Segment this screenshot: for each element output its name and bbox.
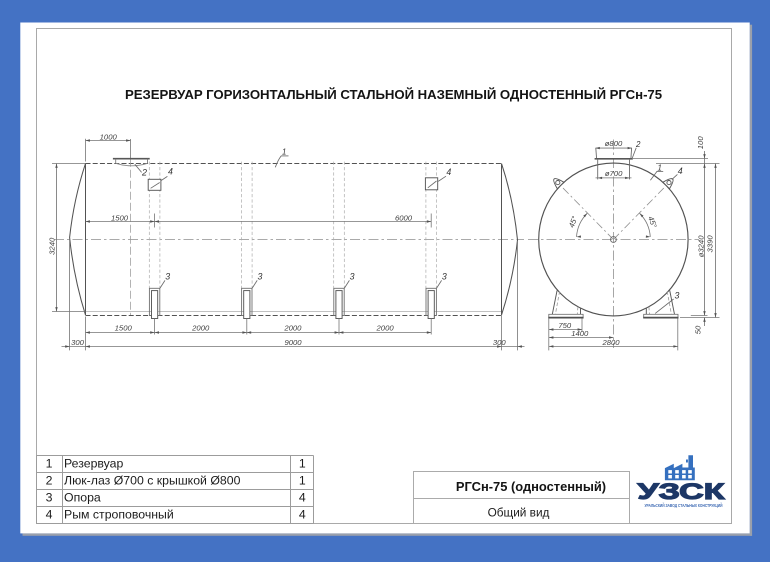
svg-text:4: 4 — [678, 166, 683, 176]
svg-text:4: 4 — [46, 507, 53, 521]
svg-text:Резервуар: Резервуар — [64, 456, 124, 470]
svg-text:Общий вид: Общий вид — [488, 505, 550, 519]
svg-text:2000: 2000 — [191, 324, 210, 333]
svg-text:1: 1 — [282, 148, 286, 157]
svg-text:2000: 2000 — [376, 324, 395, 333]
svg-text:Опора: Опора — [64, 490, 101, 504]
svg-text:2: 2 — [141, 168, 147, 178]
svg-text:1000: 1000 — [100, 132, 118, 141]
svg-text:2: 2 — [635, 140, 641, 149]
svg-text:300: 300 — [71, 338, 85, 347]
svg-text:ø800: ø800 — [605, 139, 623, 148]
svg-text:6000: 6000 — [395, 214, 413, 223]
svg-text:1500: 1500 — [111, 214, 129, 223]
svg-text:750: 750 — [558, 321, 572, 330]
svg-text:4: 4 — [299, 507, 306, 521]
svg-text:РЕЗЕРВУАР ГОРИЗОНТАЛЬНЫЙ СТАЛЬ: РЕЗЕРВУАР ГОРИЗОНТАЛЬНЫЙ СТАЛЬНОЙ НАЗЕМН… — [125, 87, 662, 102]
svg-text:УРАЛЬСКИЙ ЗАВОД СТАЛЬНЫХ КОНСТ: УРАЛЬСКИЙ ЗАВОД СТАЛЬНЫХ КОНСТРУКЦИЙ — [645, 503, 723, 508]
svg-text:1400: 1400 — [571, 329, 589, 338]
svg-text:2800: 2800 — [601, 338, 620, 347]
svg-text:3: 3 — [675, 290, 680, 300]
svg-text:УЗСК: УЗСК — [638, 479, 726, 504]
svg-text:50: 50 — [693, 325, 702, 334]
svg-text:4: 4 — [168, 166, 173, 176]
svg-text:9000: 9000 — [284, 338, 302, 347]
svg-text:1: 1 — [299, 473, 306, 487]
svg-text:1500: 1500 — [115, 324, 133, 333]
svg-text:3: 3 — [46, 490, 53, 504]
svg-text:2000: 2000 — [283, 324, 302, 333]
svg-text:3: 3 — [165, 271, 170, 281]
svg-text:4: 4 — [446, 167, 451, 177]
svg-text:Люк-лаз Ø700 с крышкой Ø800: Люк-лаз Ø700 с крышкой Ø800 — [64, 473, 241, 487]
svg-text:100: 100 — [696, 136, 705, 150]
svg-text:3: 3 — [257, 271, 262, 281]
svg-text:Рым строповочный: Рым строповочный — [64, 507, 174, 521]
svg-text:300: 300 — [493, 338, 507, 347]
svg-text:3: 3 — [442, 271, 447, 281]
svg-text:3240: 3240 — [47, 237, 56, 255]
svg-text:3: 3 — [350, 271, 355, 281]
svg-text:4: 4 — [299, 490, 306, 504]
svg-text:ø3240: ø3240 — [696, 235, 705, 258]
svg-text:ø700: ø700 — [605, 169, 623, 178]
svg-text:3390: 3390 — [706, 235, 715, 253]
svg-text:1: 1 — [299, 456, 306, 470]
svg-text:1: 1 — [46, 456, 53, 470]
svg-text:2: 2 — [46, 473, 53, 487]
svg-text:РГСн-75 (одностенный): РГСн-75 (одностенный) — [456, 479, 606, 494]
